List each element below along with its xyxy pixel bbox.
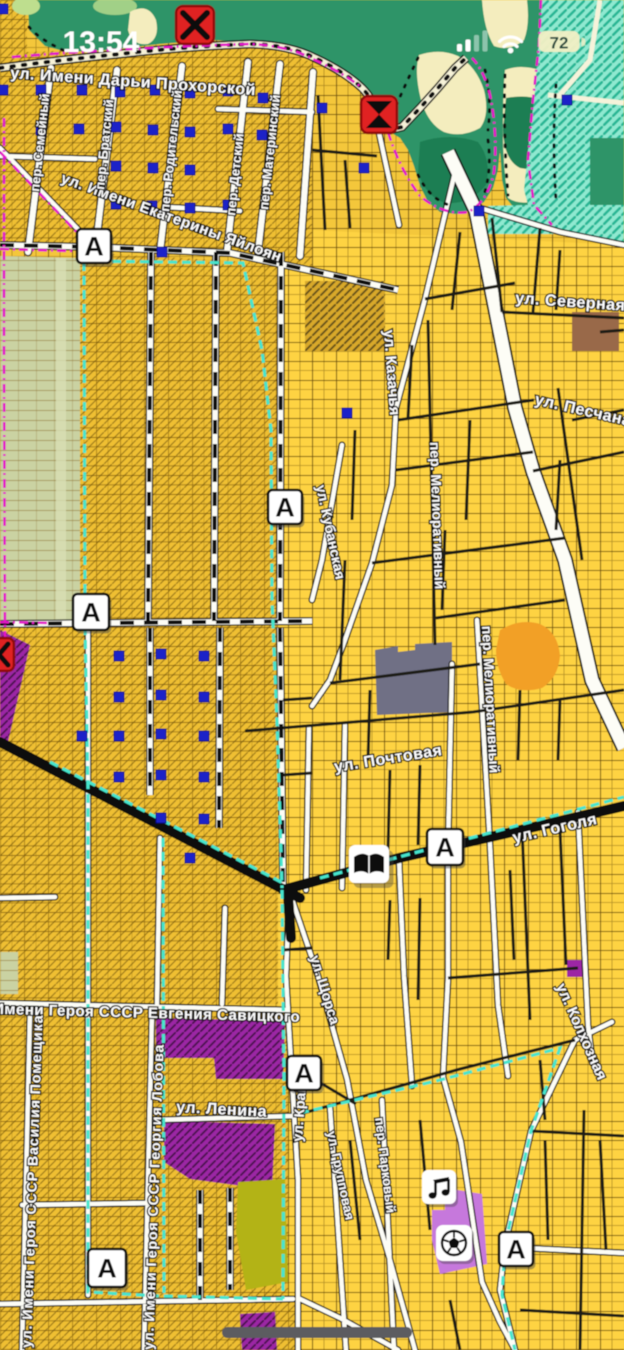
svg-text:72: 72 — [550, 34, 569, 53]
svg-text:A: A — [81, 598, 101, 628]
svg-text:A: A — [435, 833, 455, 863]
svg-text:A: A — [84, 232, 104, 262]
svg-text:13:54: 13:54 — [63, 26, 140, 59]
svg-text:A: A — [294, 1059, 314, 1089]
svg-text:A: A — [275, 493, 295, 523]
svg-text:A: A — [506, 1235, 526, 1265]
svg-text:A: A — [97, 1254, 117, 1284]
